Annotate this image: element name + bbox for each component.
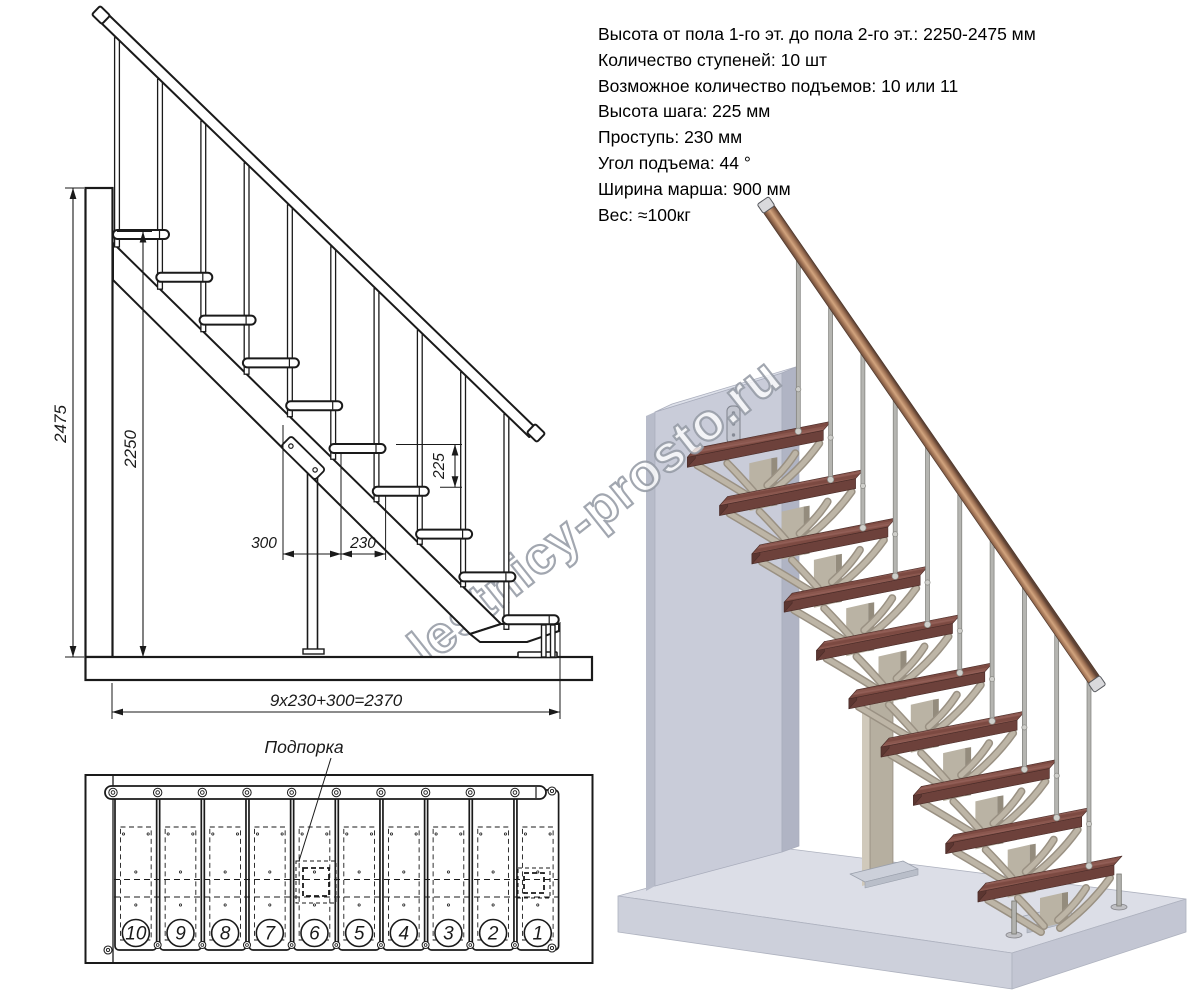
baluster bbox=[244, 163, 249, 374]
baluster-joint-sphere bbox=[1086, 863, 1092, 869]
baluster-joint-sphere bbox=[1054, 815, 1060, 821]
step-number: 6 bbox=[309, 924, 320, 945]
handrail-band bbox=[100, 14, 537, 437]
column-left bbox=[862, 698, 870, 886]
dimension-arrow bbox=[549, 709, 560, 716]
plan-screw bbox=[511, 942, 518, 949]
spec-line-weight: Вес: ≈100кг bbox=[598, 203, 1183, 229]
elevation-view bbox=[86, 6, 593, 680]
baluster bbox=[374, 289, 379, 502]
dimension-arrow bbox=[140, 646, 147, 657]
baluster-joint-sphere bbox=[1022, 725, 1027, 730]
spec-line-angle: Угол подъема: 44 ° bbox=[598, 151, 1183, 177]
plan-corner-screw bbox=[104, 946, 112, 954]
baluster-3d bbox=[1087, 672, 1091, 868]
baluster-3d bbox=[990, 532, 994, 723]
baluster bbox=[331, 247, 336, 459]
baluster-3d bbox=[1055, 626, 1059, 820]
plan-baluster bbox=[332, 788, 340, 796]
baluster-3d bbox=[958, 485, 962, 674]
step-number: 1 bbox=[532, 924, 543, 945]
staircase-drawing-page: lestnicy-prosto.ru 247522503002302259x23… bbox=[0, 0, 1191, 993]
tread bbox=[503, 615, 559, 624]
wall-section bbox=[86, 188, 113, 657]
dimension-arrow bbox=[452, 476, 459, 487]
spec-line-height-range: Высота от пола 1-го эт. до пола 2-го эт.… bbox=[598, 22, 1183, 48]
plan-screw bbox=[333, 942, 340, 949]
baluster-joint-sphere bbox=[957, 670, 963, 676]
baluster-3d bbox=[893, 392, 897, 578]
baluster bbox=[158, 79, 163, 289]
support-label: Подпорка bbox=[264, 737, 343, 757]
plan-baluster bbox=[243, 788, 251, 796]
step-number: 7 bbox=[265, 924, 277, 945]
tread bbox=[416, 530, 472, 539]
plan-baluster bbox=[287, 788, 295, 796]
plan-corner-screw bbox=[548, 944, 556, 952]
spec-line-tread: Проступь: 230 мм bbox=[598, 125, 1183, 151]
leg bbox=[1012, 901, 1017, 934]
dim-label-2475: 2475 bbox=[51, 405, 70, 444]
step-number: 2 bbox=[487, 924, 499, 945]
plan-screw bbox=[467, 942, 474, 949]
dimension-arrow bbox=[452, 445, 459, 456]
plan-corner-screw bbox=[548, 787, 556, 795]
column-foot bbox=[303, 649, 324, 654]
tread bbox=[156, 273, 212, 282]
plan-handrail bbox=[105, 786, 546, 799]
baluster-joint-sphere bbox=[827, 476, 833, 482]
spec-line-step-height: Высота шага: 225 мм bbox=[598, 99, 1183, 125]
step-number: 4 bbox=[399, 924, 410, 945]
plan-view: 10987654321Подпорка bbox=[86, 737, 593, 963]
tread bbox=[373, 487, 429, 496]
baluster-3d bbox=[861, 345, 865, 530]
baluster bbox=[201, 121, 206, 331]
plan-screw bbox=[199, 942, 206, 949]
dim-label-2250: 2250 bbox=[121, 430, 140, 469]
step-number: 9 bbox=[175, 924, 186, 945]
tread bbox=[243, 358, 299, 367]
plan-baluster bbox=[153, 788, 161, 796]
tread bbox=[286, 401, 342, 410]
dim-label-300: 300 bbox=[251, 535, 277, 552]
baluster-joint-sphere bbox=[990, 677, 995, 682]
spec-line-step-count: Количество ступеней: 10 шт bbox=[598, 48, 1183, 74]
step-number: 3 bbox=[443, 924, 454, 945]
baluster-joint-sphere bbox=[860, 525, 866, 531]
plan-screw bbox=[243, 942, 250, 949]
dimension-arrow bbox=[283, 551, 294, 558]
baluster-3d bbox=[796, 252, 800, 434]
plan-screw bbox=[154, 942, 161, 949]
baluster-joint-sphere bbox=[860, 483, 865, 488]
dimension-arrow bbox=[375, 551, 386, 558]
dim-label-230: 230 bbox=[349, 535, 376, 552]
baluster-joint-sphere bbox=[1086, 821, 1091, 826]
bottom-leg bbox=[542, 625, 547, 657]
spec-line-width: Ширина марша: 900 мм bbox=[598, 177, 1183, 203]
dim-label-total-run: 9x230+300=2370 bbox=[270, 691, 403, 710]
plan-baluster bbox=[198, 788, 206, 796]
floor-base bbox=[86, 657, 593, 680]
baluster bbox=[461, 372, 466, 586]
dim-label-225: 225 bbox=[431, 453, 448, 480]
baluster-joint-sphere bbox=[795, 428, 801, 434]
plan-baluster bbox=[511, 788, 519, 796]
support-column bbox=[303, 470, 324, 654]
baluster-3d bbox=[926, 439, 930, 627]
plan-screw bbox=[288, 942, 295, 949]
step-number: 5 bbox=[354, 924, 365, 945]
handrail-wood bbox=[761, 201, 1103, 687]
plan-baluster bbox=[466, 788, 474, 796]
specifications-block: Высота от пола 1-го эт. до пола 2-го эт.… bbox=[598, 22, 1183, 228]
baluster-3d bbox=[1022, 579, 1026, 771]
baluster-joint-sphere bbox=[924, 621, 930, 627]
baluster-joint-sphere bbox=[957, 628, 962, 633]
staircase-3d-render bbox=[600, 190, 1191, 993]
plan-screw bbox=[377, 942, 384, 949]
dimension-arrow bbox=[112, 709, 123, 716]
spec-line-rise-count: Возможное количество подъемов: 10 или 11 bbox=[598, 74, 1183, 100]
baluster-joint-sphere bbox=[796, 387, 801, 392]
baluster bbox=[504, 414, 509, 629]
tread bbox=[330, 444, 386, 453]
baluster-3d bbox=[829, 298, 833, 481]
plan-screw bbox=[422, 942, 429, 949]
dimension-arrow bbox=[70, 646, 77, 657]
dimension-arrow bbox=[330, 551, 341, 558]
plan-baluster bbox=[109, 788, 117, 796]
baluster-joint-sphere bbox=[925, 580, 930, 585]
dimension-arrow bbox=[70, 188, 77, 199]
tread bbox=[200, 316, 256, 325]
technical-drawing: 247522503002302259x230+300=2370109876543… bbox=[0, 0, 620, 993]
baluster-joint-sphere bbox=[892, 573, 898, 579]
leg bbox=[1117, 874, 1122, 906]
step-number: 10 bbox=[125, 924, 147, 945]
baluster bbox=[417, 331, 422, 545]
bottom-leg bbox=[551, 625, 556, 657]
baluster bbox=[288, 205, 293, 417]
baluster-joint-sphere bbox=[828, 435, 833, 440]
plan-baluster bbox=[421, 788, 429, 796]
baluster-joint-sphere bbox=[989, 718, 995, 724]
baluster-joint-sphere bbox=[1054, 773, 1059, 778]
baluster-joint-sphere bbox=[1021, 766, 1027, 772]
baluster bbox=[115, 38, 120, 247]
baluster-joint-sphere bbox=[893, 532, 898, 537]
plan-baluster bbox=[377, 788, 385, 796]
step-number: 8 bbox=[220, 924, 231, 945]
tread bbox=[459, 572, 515, 581]
